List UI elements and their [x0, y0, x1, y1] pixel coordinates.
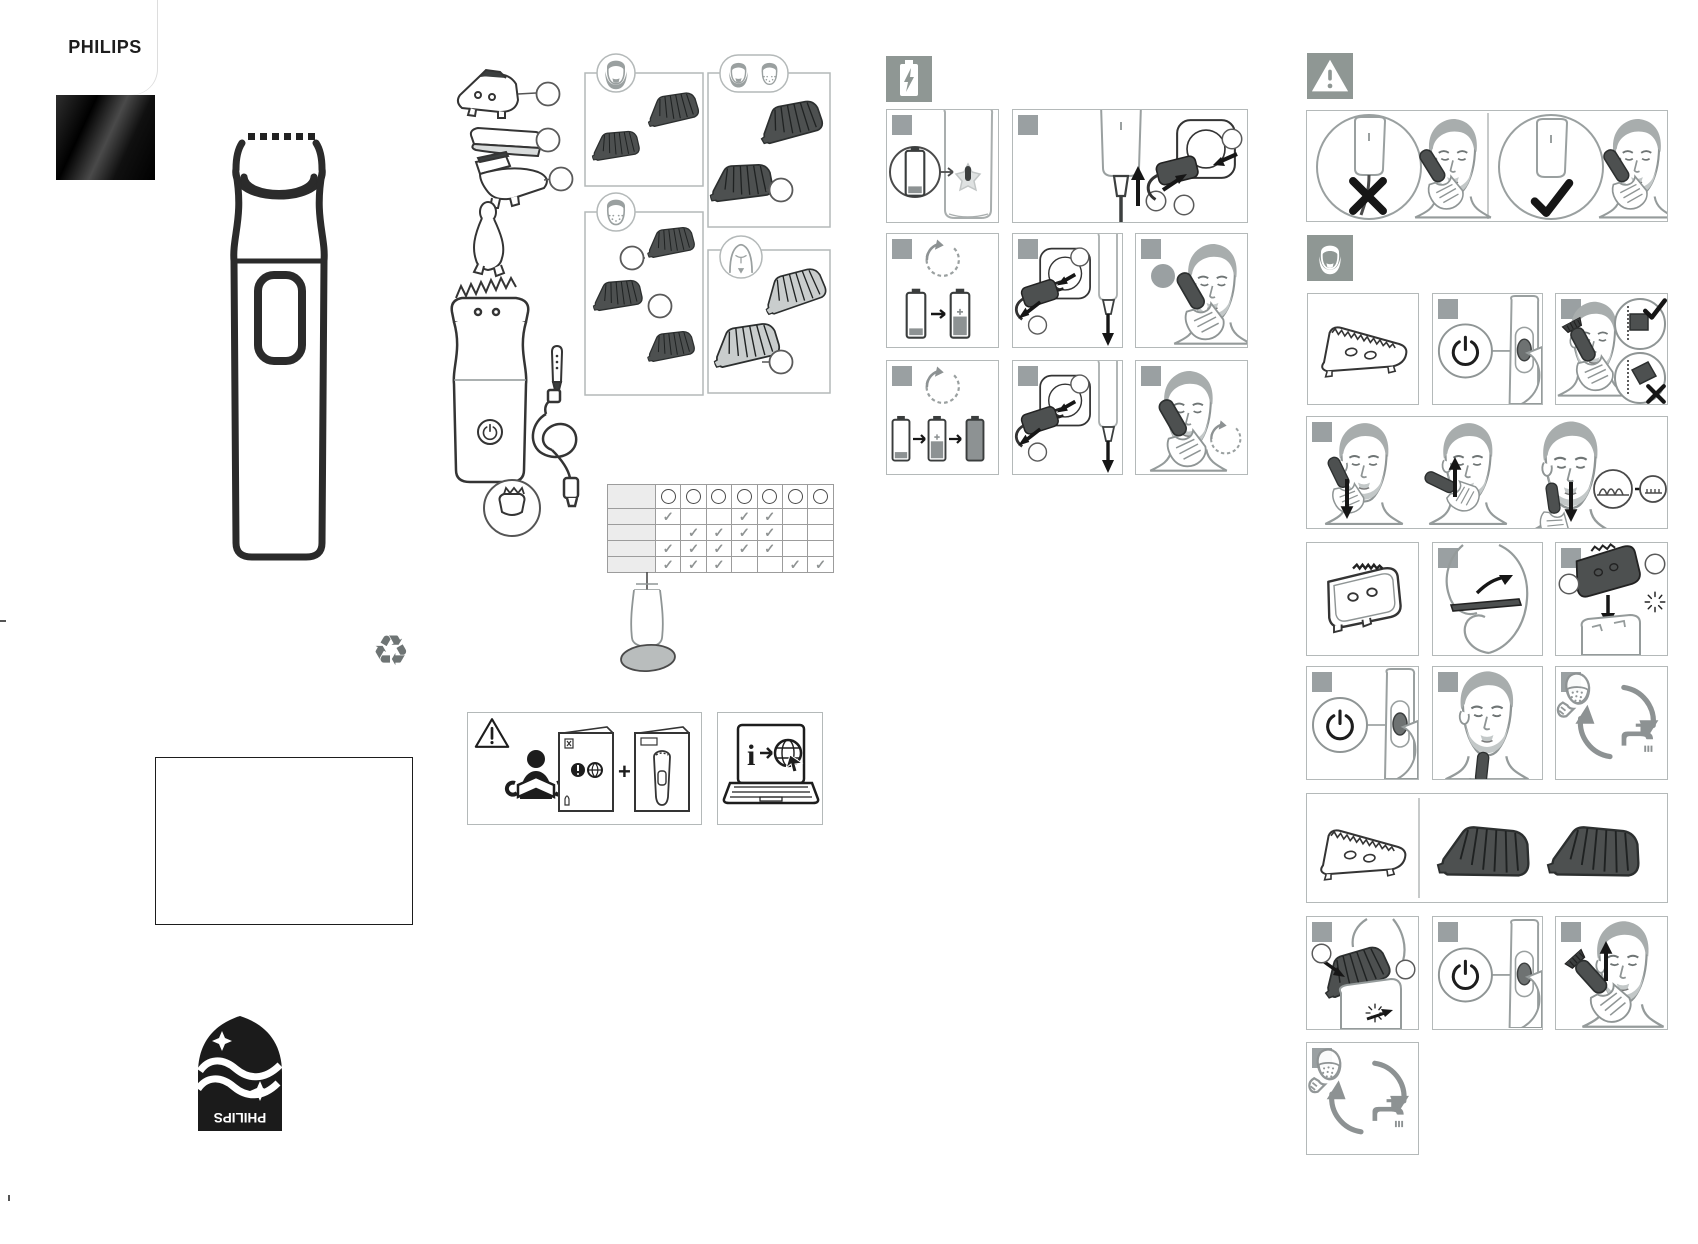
unplug-socket-icon — [1013, 375, 1090, 461]
handle-cable-icon — [1101, 110, 1141, 222]
trim-directions-panel — [1306, 416, 1668, 529]
table-check-cell — [808, 509, 833, 525]
attachment-compatibility-table: ✓✓✓✓✓✓✓✓✓✓✓✓✓✓✓✓✓ — [607, 484, 834, 573]
device-outline-illustration — [222, 125, 337, 570]
table-attachment-header-cell — [681, 485, 706, 509]
table-corner-cell — [608, 485, 656, 509]
table-check-cell — [656, 525, 681, 541]
attach-comb-panel — [1306, 916, 1419, 1030]
handle-with-comb-part — [452, 278, 529, 482]
table-check-cell — [732, 557, 757, 573]
warning-icon — [1307, 53, 1353, 99]
callout-circle — [1396, 960, 1415, 979]
rinse-head-panel — [1555, 666, 1668, 780]
usb-cable-part — [533, 390, 578, 506]
callout-circle — [550, 168, 573, 191]
oil-bottle-illustration — [610, 572, 690, 676]
nose-trimmer-part — [474, 202, 504, 276]
attachment-circle-icon — [737, 489, 752, 504]
beard-combs-box — [585, 73, 703, 186]
battery-mid-icon — [951, 289, 970, 338]
table-attachment-header-cell — [758, 485, 783, 509]
corded-vs-cordless-panel — [1306, 110, 1668, 222]
attachment-circle-icon — [788, 489, 803, 504]
rinse-cycle-icon — [1558, 674, 1659, 757]
shield-wordmark: PHILIPS — [214, 1110, 267, 1125]
recycle-icon: ♻ — [372, 630, 410, 672]
laptop-icon — [724, 725, 818, 803]
attachment-circle-icon — [686, 489, 701, 504]
plug-in-panel — [1012, 109, 1248, 223]
print-crop-mark — [0, 620, 6, 622]
table-attachment-header-cell — [808, 485, 833, 509]
table-attachment-header-cell — [707, 485, 732, 509]
table-attachment-header-cell — [783, 485, 808, 509]
cleaning-pen-part — [552, 346, 562, 390]
power-on-panel — [1432, 916, 1543, 1030]
click-spark-icon — [1645, 592, 1665, 612]
power-button-press — [1439, 296, 1542, 404]
unplug-panel — [1012, 360, 1123, 475]
charge-time-icon — [927, 239, 959, 275]
remove-guard-panel — [1432, 542, 1543, 656]
battery-low-icon — [907, 289, 926, 338]
reader-icon — [507, 750, 565, 799]
table-check-cell — [783, 509, 808, 525]
battery-full-icon — [967, 416, 984, 461]
guide-comb — [643, 328, 695, 363]
table-check-cell: ✓ — [707, 557, 732, 573]
table-row-label-cell — [608, 525, 656, 541]
table-row-label-cell — [608, 541, 656, 557]
duration-dot — [1151, 264, 1175, 288]
unplug-panel — [1012, 233, 1123, 348]
body-comb — [757, 263, 828, 316]
callout-circle — [770, 351, 793, 374]
guide-comb — [643, 224, 695, 259]
table-check-cell: ✓ — [681, 525, 706, 541]
philips-logo-card: PHILIPS — [53, 0, 157, 95]
table-check-cell: ✓ — [732, 541, 757, 557]
accessory-callout — [484, 480, 540, 536]
charge-time-icon — [927, 366, 959, 402]
guide-comb — [1548, 827, 1639, 875]
read-safety-leaflet-panel: + — [467, 712, 702, 825]
guide-comb — [754, 96, 824, 146]
device-leaflet-icon — [635, 727, 689, 811]
table-check-cell: ✓ — [681, 557, 706, 573]
callout-circle — [537, 83, 560, 106]
table-check-cell: ✓ — [758, 541, 783, 557]
table-check-cell — [707, 509, 732, 525]
attachment-circle-icon — [813, 489, 828, 504]
table-check-cell — [681, 509, 706, 525]
clip-comb-icon — [1321, 830, 1405, 879]
info-glyph: i — [747, 739, 755, 772]
table-row-label-cell — [608, 509, 656, 525]
print-crop-mark — [8, 1195, 10, 1201]
warning-triangle-icon — [476, 719, 508, 747]
two-faces-icon — [720, 55, 788, 92]
rinse-comb-panel — [1306, 1042, 1419, 1155]
full-charge-panel — [886, 360, 999, 475]
power-button-press — [1313, 669, 1418, 779]
trim-up-panel — [1555, 916, 1668, 1030]
table-check-cell — [808, 541, 833, 557]
callout-circle — [1174, 195, 1193, 214]
detail-shaver-part — [476, 152, 547, 208]
table-check-cell — [758, 557, 783, 573]
power-on-panel — [1432, 293, 1543, 405]
detail-trim-panel — [1432, 666, 1543, 780]
guide-comb — [589, 277, 643, 312]
precision-trimmer-part — [458, 70, 518, 118]
battery-mid-icon — [929, 416, 946, 461]
table-check-cell: ✓ — [808, 557, 833, 573]
table-attachment-header-cell — [656, 485, 681, 509]
comb-angle-panel — [1555, 293, 1668, 405]
trimmer-head-panel — [1306, 542, 1419, 656]
plus-sign: + — [618, 759, 631, 784]
table-check-cell: ✓ — [656, 541, 681, 557]
table-row-label-cell — [608, 557, 656, 573]
power-on-panel — [1306, 666, 1419, 780]
callout-circle — [1645, 554, 1664, 573]
safety-booklet-icon — [559, 727, 613, 811]
philips-wordmark: PHILIPS — [68, 37, 142, 58]
more-info-online-panel: i — [717, 712, 823, 825]
guide-comb — [643, 89, 700, 128]
cordless-use-panel — [1135, 360, 1248, 475]
table-check-cell: ✓ — [732, 509, 757, 525]
notes-box — [155, 757, 413, 925]
callout-circle — [621, 247, 644, 270]
battery-charging-icon — [886, 56, 932, 102]
table-check-cell — [783, 525, 808, 541]
table-check-cell: ✓ — [732, 525, 757, 541]
clip-comb-panel — [1307, 293, 1419, 405]
beard-icon — [1307, 235, 1353, 281]
unplug-socket-icon — [1013, 248, 1090, 334]
runtime-icon — [1211, 420, 1240, 453]
guide-comb — [706, 161, 773, 203]
table-check-cell: ✓ — [681, 541, 706, 557]
comb-options-panel — [1306, 793, 1668, 903]
attach-head-panel — [1555, 542, 1668, 656]
battery-low-indicator-panel — [886, 109, 999, 223]
rinse-cycle-icon — [1309, 1050, 1409, 1132]
callout-circle — [1312, 944, 1331, 963]
battery-low-icon — [893, 416, 910, 461]
callout-circle — [537, 129, 560, 152]
trimmer-head-icon — [1328, 565, 1400, 632]
table-check-cell: ✓ — [758, 525, 783, 541]
table-check-cell: ✓ — [783, 557, 808, 573]
table-check-cell: ✓ — [758, 509, 783, 525]
philips-shield-emblem: PHILIPS — [190, 1013, 290, 1135]
quick-charge-panel — [886, 233, 999, 348]
table-attachment-header-cell — [732, 485, 757, 509]
power-button-press — [1439, 920, 1542, 1028]
attachment-circle-icon — [661, 489, 676, 504]
callout-circle — [649, 295, 672, 318]
callout-circle — [1559, 574, 1578, 593]
philips-logo-black-box — [56, 95, 155, 180]
callout-circle — [770, 179, 793, 202]
battery-low-icon — [906, 147, 925, 196]
clip-comb-icon — [1322, 327, 1406, 376]
table-check-cell: ✓ — [707, 541, 732, 557]
trim-after-quick-charge-panel — [1135, 233, 1248, 348]
table-check-cell: ✓ — [707, 525, 732, 541]
attachment-circle-icon — [762, 489, 777, 504]
table-check-cell — [808, 525, 833, 541]
table-check-cell — [783, 541, 808, 557]
table-check-cell: ✓ — [656, 557, 681, 573]
guide-comb — [588, 128, 640, 161]
leaflet-page: PHILIPS ♻ PHILIPS — [0, 0, 1698, 1244]
two-style-combs-box — [708, 73, 830, 227]
callout-circle — [1222, 129, 1241, 148]
table-check-cell: ✓ — [656, 509, 681, 525]
guide-comb — [1438, 827, 1529, 875]
attachment-circle-icon — [711, 489, 726, 504]
